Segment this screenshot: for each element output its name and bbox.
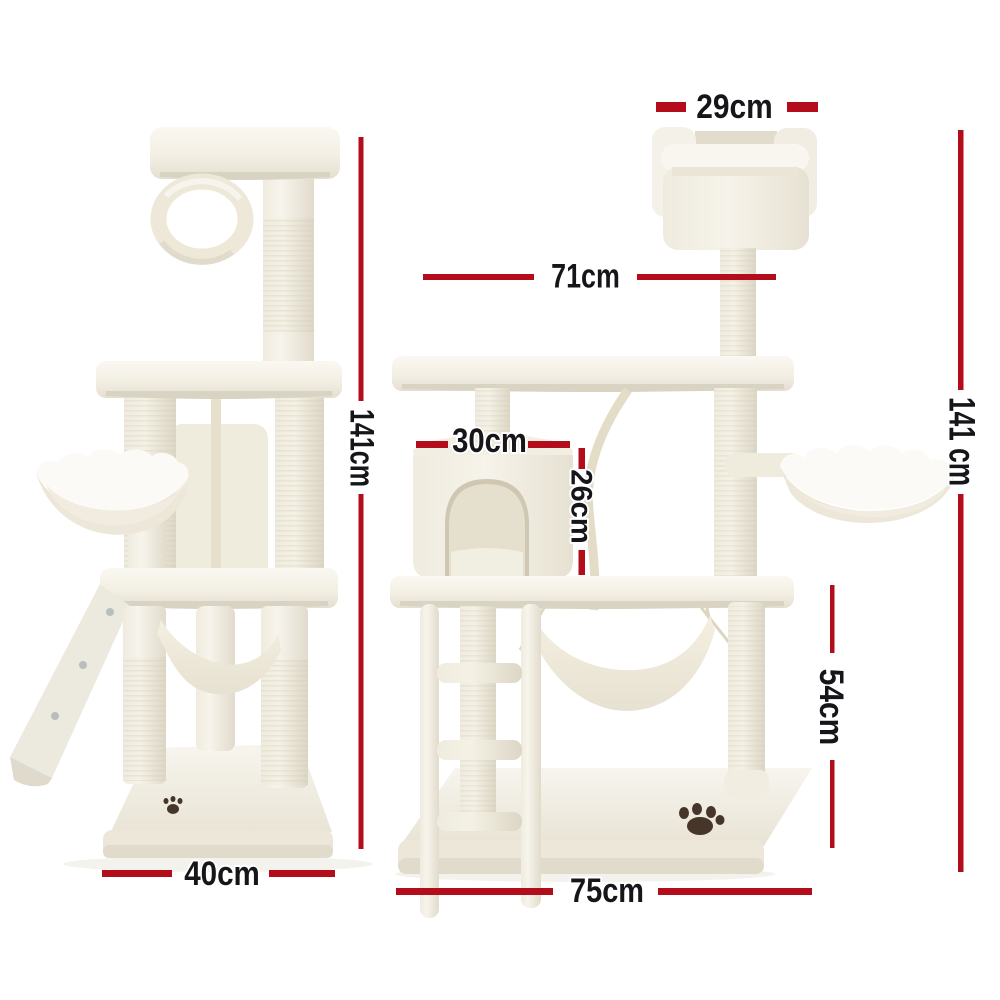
svg-text:40cm: 40cm xyxy=(184,854,260,892)
svg-text:141 cm: 141 cm xyxy=(941,397,983,486)
svg-text:75cm: 75cm xyxy=(570,871,644,910)
svg-text:30cm: 30cm xyxy=(452,421,527,460)
svg-text:71cm: 71cm xyxy=(551,257,620,295)
svg-text:29cm: 29cm xyxy=(696,87,773,125)
svg-text:26cm: 26cm xyxy=(564,469,597,543)
svg-text:141cm: 141cm xyxy=(343,409,381,487)
svg-text:54cm: 54cm xyxy=(813,669,851,746)
